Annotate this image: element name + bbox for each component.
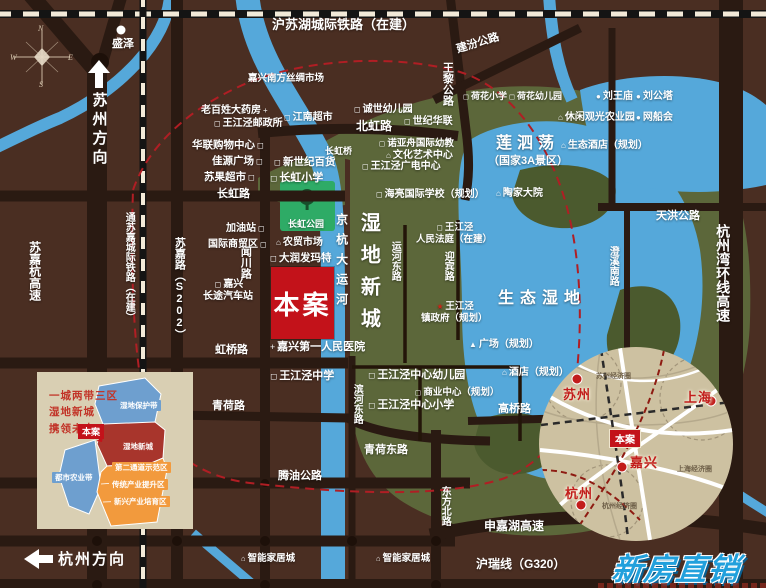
site-marker-box: 本案 (271, 267, 334, 339)
compass-n: N (38, 24, 43, 33)
plan-region-label: 传统产业提升区 (109, 479, 168, 490)
watermark-strip (598, 583, 766, 588)
brand-logo: 新房直销 (610, 544, 743, 588)
economic-circle-label: 杭州经济圈 (602, 501, 637, 511)
plan-region-label: 都市农业带 (52, 472, 96, 483)
location-map: 沪苏湖城际铁路（在建）盛泽嘉兴南方丝绸市场老百姓大药房+◻王江泾邮政所◻江南超市… (0, 0, 766, 588)
plan-region-label: 第二通道示范区 (112, 462, 171, 473)
hangzhou-direction-label: 杭州方向 (58, 548, 126, 569)
hangzhou-direction: 杭州方向 (24, 548, 126, 569)
compass-s: S (39, 80, 43, 89)
city-label-杭州: 杭州 (565, 483, 593, 502)
arrow-up-icon (88, 60, 110, 73)
plan-region-label: 新兴产业培育区 (111, 496, 170, 507)
compass-w: W (10, 53, 17, 62)
suzhou-direction: 苏州方向 (88, 60, 110, 168)
planning-inset-map: 一城两带三区 湿地新城 携领未来 本案 湿地保护带湿地新城第二通道示范区传统产业… (37, 372, 193, 529)
planning-inset-site-tag: 本案 (78, 424, 104, 439)
plan-region-label: 湿地新城 (120, 441, 156, 452)
city-label-上海: 上海 (684, 387, 712, 406)
region-inset-site-tag: 本案 (609, 429, 641, 448)
suzhou-direction-label: 苏州方向 (89, 92, 110, 168)
compass-e: E (68, 53, 73, 62)
plan-region-label: 湿地保护带 (117, 400, 161, 411)
compass-rose: N W E S (12, 26, 72, 90)
economic-circle-label: 上海经济圈 (677, 464, 712, 474)
shengze-dot (117, 26, 126, 35)
economic-circle-label: 苏州经济圈 (596, 371, 631, 381)
city-label-苏州: 苏州 (563, 384, 591, 403)
city-label-嘉兴: 嘉兴 (630, 452, 658, 471)
arrow-left-icon (24, 549, 39, 569)
changhong-park-area (280, 181, 335, 231)
